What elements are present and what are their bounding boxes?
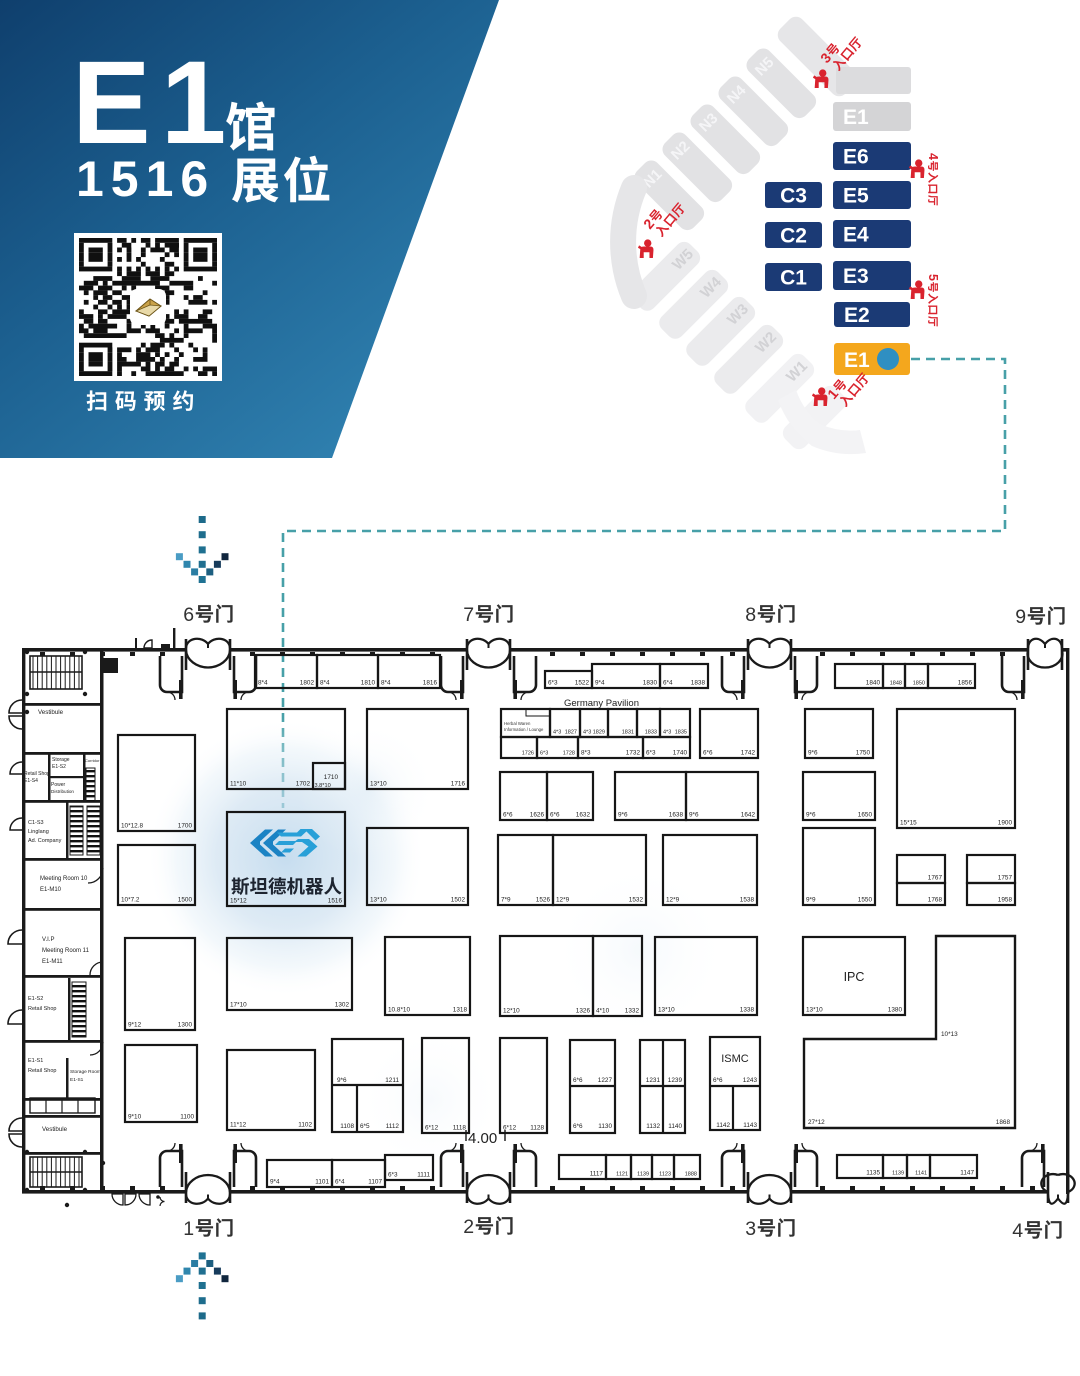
svg-text:E2: E2 bbox=[844, 304, 870, 327]
svg-text:11*10: 11*10 bbox=[230, 781, 247, 788]
svg-text:1830: 1830 bbox=[643, 680, 658, 687]
svg-text:1868: 1868 bbox=[996, 1119, 1011, 1126]
svg-text:10.8*10: 10.8*10 bbox=[388, 1007, 410, 1014]
svg-text:E1-S1: E1-S1 bbox=[70, 1077, 84, 1083]
svg-text:V.I.P: V.I.P bbox=[42, 937, 54, 943]
svg-text:1626: 1626 bbox=[530, 812, 545, 819]
svg-text:1516: 1516 bbox=[76, 151, 215, 207]
svg-text:1141: 1141 bbox=[915, 1171, 927, 1177]
svg-text:1380: 1380 bbox=[888, 1007, 903, 1014]
svg-text:13*10: 13*10 bbox=[370, 897, 387, 904]
svg-text:4*3: 4*3 bbox=[583, 730, 591, 736]
svg-text:Retail Shop: Retail Shop bbox=[24, 771, 50, 777]
svg-text:1302: 1302 bbox=[335, 1002, 350, 1009]
svg-text:1740: 1740 bbox=[673, 750, 688, 757]
svg-text:5: 5 bbox=[926, 274, 940, 281]
svg-text:1838: 1838 bbox=[691, 680, 706, 687]
svg-text:Power: Power bbox=[51, 782, 66, 788]
svg-text:Storage Room: Storage Room bbox=[70, 1069, 101, 1075]
svg-text:11*12: 11*12 bbox=[230, 1122, 247, 1129]
svg-text:13*10: 13*10 bbox=[806, 1007, 823, 1014]
svg-text:1135: 1135 bbox=[866, 1170, 880, 1177]
svg-text:6*6: 6*6 bbox=[573, 1123, 583, 1130]
svg-text:6: 6 bbox=[183, 604, 194, 626]
svg-text:6*3: 6*3 bbox=[548, 680, 558, 687]
svg-text:6*6: 6*6 bbox=[713, 1077, 723, 1084]
svg-text:1650: 1650 bbox=[858, 812, 873, 819]
svg-text:10*13: 10*13 bbox=[941, 1031, 958, 1038]
svg-text:9*6: 9*6 bbox=[689, 812, 699, 819]
svg-text:Meeting Room 10: Meeting Room 10 bbox=[40, 876, 88, 882]
svg-text:E6: E6 bbox=[843, 146, 869, 169]
svg-text:1757: 1757 bbox=[998, 875, 1013, 882]
svg-text:1332: 1332 bbox=[625, 1008, 640, 1015]
svg-text:15*15: 15*15 bbox=[900, 820, 917, 827]
svg-text:C3: C3 bbox=[780, 185, 807, 208]
svg-text:8*3: 8*3 bbox=[581, 750, 591, 757]
svg-text:1900: 1900 bbox=[998, 820, 1013, 827]
svg-text:Meeting Room 11: Meeting Room 11 bbox=[42, 948, 90, 954]
svg-text:7*9: 7*9 bbox=[501, 897, 511, 904]
svg-text:6*6: 6*6 bbox=[503, 812, 513, 819]
svg-text:1102: 1102 bbox=[298, 1122, 312, 1129]
svg-text:Information / Lounge: Information / Lounge bbox=[504, 727, 544, 732]
svg-text:ISMC: ISMC bbox=[721, 1053, 749, 1065]
svg-text:1123: 1123 bbox=[659, 1172, 671, 1178]
svg-text:1300: 1300 bbox=[178, 1022, 193, 1029]
svg-text:1211: 1211 bbox=[385, 1077, 399, 1084]
svg-text:9*6: 9*6 bbox=[618, 812, 628, 819]
svg-text:E1-S4: E1-S4 bbox=[24, 778, 38, 784]
svg-text:7: 7 bbox=[463, 604, 474, 626]
svg-text:6*6: 6*6 bbox=[573, 1077, 583, 1084]
svg-text:1231: 1231 bbox=[646, 1077, 661, 1084]
svg-text:E1-S2: E1-S2 bbox=[52, 764, 66, 770]
svg-text:1732: 1732 bbox=[626, 750, 641, 757]
svg-text:1140: 1140 bbox=[668, 1123, 682, 1130]
svg-text:1108: 1108 bbox=[340, 1123, 354, 1130]
svg-text:1128: 1128 bbox=[530, 1125, 544, 1132]
svg-text:12*9: 12*9 bbox=[666, 897, 680, 904]
svg-text:1139: 1139 bbox=[892, 1171, 904, 1177]
svg-text:E1-M11: E1-M11 bbox=[42, 959, 63, 965]
svg-text:1848: 1848 bbox=[890, 681, 902, 687]
svg-text:1827: 1827 bbox=[565, 730, 577, 736]
svg-text:E5: E5 bbox=[843, 185, 869, 208]
svg-text:1130: 1130 bbox=[598, 1123, 612, 1130]
svg-text:1132: 1132 bbox=[646, 1123, 660, 1130]
svg-text:12*10: 12*10 bbox=[503, 1008, 520, 1015]
svg-text:1810: 1810 bbox=[361, 680, 376, 687]
svg-text:Vestibule: Vestibule bbox=[42, 1126, 68, 1133]
svg-text:2: 2 bbox=[463, 1216, 474, 1238]
svg-text:4: 4 bbox=[926, 153, 940, 160]
svg-text:1147: 1147 bbox=[960, 1170, 974, 1177]
svg-text:4: 4 bbox=[1012, 1220, 1023, 1242]
svg-text:13*10: 13*10 bbox=[370, 781, 387, 788]
svg-text:1101: 1101 bbox=[315, 1179, 329, 1186]
svg-text:1139: 1139 bbox=[637, 1172, 649, 1178]
svg-text:1856: 1856 bbox=[958, 680, 973, 687]
svg-text:Ad. Company: Ad. Company bbox=[28, 838, 62, 844]
svg-text:Retail Shop: Retail Shop bbox=[28, 1068, 56, 1074]
svg-text:1700: 1700 bbox=[178, 823, 193, 830]
svg-text:E1-S1: E1-S1 bbox=[28, 1058, 43, 1064]
svg-text:1532: 1532 bbox=[629, 897, 644, 904]
svg-text:1728: 1728 bbox=[563, 751, 575, 757]
svg-text:1239: 1239 bbox=[668, 1077, 683, 1084]
svg-text:1816: 1816 bbox=[423, 680, 438, 687]
svg-text:9*10: 9*10 bbox=[128, 1114, 142, 1121]
svg-text:1: 1 bbox=[183, 1218, 194, 1240]
svg-text:3: 3 bbox=[745, 1218, 756, 1240]
svg-text:9: 9 bbox=[1015, 606, 1026, 628]
svg-text:1638: 1638 bbox=[669, 812, 684, 819]
svg-text:E3: E3 bbox=[843, 265, 869, 288]
svg-text:1642: 1642 bbox=[741, 812, 756, 819]
svg-text:E1: E1 bbox=[843, 106, 869, 129]
svg-text:1888: 1888 bbox=[685, 1172, 697, 1178]
svg-text:4*3: 4*3 bbox=[663, 730, 671, 736]
svg-text:E1: E1 bbox=[844, 349, 870, 372]
svg-text:3.8*10: 3.8*10 bbox=[315, 783, 331, 789]
svg-text:8*4: 8*4 bbox=[381, 680, 391, 687]
svg-text:1958: 1958 bbox=[998, 897, 1013, 904]
svg-text:Germany Pavilion: Germany Pavilion bbox=[564, 698, 639, 709]
svg-text:6*4: 6*4 bbox=[663, 680, 673, 687]
svg-text:1750: 1750 bbox=[856, 750, 871, 757]
svg-text:4*3: 4*3 bbox=[553, 730, 561, 736]
svg-text:1538: 1538 bbox=[740, 897, 755, 904]
svg-text:Retail Shop: Retail Shop bbox=[28, 1006, 56, 1012]
svg-text:9*12: 9*12 bbox=[128, 1022, 142, 1029]
svg-text:1833: 1833 bbox=[645, 730, 657, 736]
svg-text:C1-S3: C1-S3 bbox=[28, 820, 44, 826]
svg-text:1726: 1726 bbox=[522, 751, 534, 757]
svg-text:6*12: 6*12 bbox=[425, 1125, 439, 1132]
svg-text:13*10: 13*10 bbox=[658, 1007, 675, 1014]
svg-text:1143: 1143 bbox=[743, 1122, 757, 1129]
svg-text:4.00: 4.00 bbox=[468, 1130, 497, 1147]
svg-text:9*6: 9*6 bbox=[337, 1077, 347, 1084]
svg-text:1831: 1831 bbox=[622, 730, 634, 736]
svg-text:E1: E1 bbox=[72, 37, 236, 169]
svg-text:1829: 1829 bbox=[593, 730, 605, 736]
svg-text:9*6: 9*6 bbox=[806, 812, 816, 819]
svg-text:1117: 1117 bbox=[590, 1171, 604, 1178]
svg-text:C2: C2 bbox=[780, 225, 807, 248]
svg-text:8: 8 bbox=[745, 604, 756, 626]
svg-text:Corridor: Corridor bbox=[85, 758, 100, 763]
svg-text:1526: 1526 bbox=[536, 897, 551, 904]
svg-text:E4: E4 bbox=[843, 224, 869, 247]
svg-text:6*6: 6*6 bbox=[550, 812, 560, 819]
svg-text:15*12: 15*12 bbox=[230, 898, 247, 905]
svg-text:1710: 1710 bbox=[324, 774, 339, 781]
svg-text:Distribution: Distribution bbox=[51, 789, 74, 794]
svg-text:1338: 1338 bbox=[740, 1007, 755, 1014]
svg-text:1716: 1716 bbox=[451, 781, 466, 788]
svg-text:IPC: IPC bbox=[844, 970, 865, 984]
svg-text:Herbal Waren: Herbal Waren bbox=[504, 721, 531, 726]
svg-text:12*9: 12*9 bbox=[556, 897, 570, 904]
svg-text:9*4: 9*4 bbox=[270, 1179, 280, 1186]
svg-text:6*4: 6*4 bbox=[335, 1179, 345, 1186]
svg-text:1502: 1502 bbox=[451, 897, 466, 904]
svg-text:4*10: 4*10 bbox=[596, 1008, 610, 1015]
svg-text:1112: 1112 bbox=[386, 1123, 400, 1130]
svg-text:Vestibule: Vestibule bbox=[38, 709, 64, 716]
svg-text:1100: 1100 bbox=[180, 1114, 194, 1121]
svg-text:27*12: 27*12 bbox=[808, 1119, 825, 1126]
svg-text:1550: 1550 bbox=[858, 897, 873, 904]
svg-text:1326: 1326 bbox=[576, 1008, 591, 1015]
svg-text:17*10: 17*10 bbox=[230, 1002, 247, 1009]
svg-text:1767: 1767 bbox=[928, 875, 943, 882]
svg-text:1516: 1516 bbox=[328, 898, 343, 905]
svg-text:1142: 1142 bbox=[716, 1122, 730, 1129]
svg-text:1318: 1318 bbox=[453, 1007, 468, 1014]
svg-text:E1-S2: E1-S2 bbox=[28, 996, 43, 1002]
svg-text:1522: 1522 bbox=[575, 680, 590, 687]
svg-text:1500: 1500 bbox=[178, 897, 193, 904]
svg-text:8*4: 8*4 bbox=[320, 680, 330, 687]
svg-text:1111: 1111 bbox=[417, 1172, 430, 1179]
svg-text:C1: C1 bbox=[780, 267, 807, 290]
svg-text:6*3: 6*3 bbox=[388, 1172, 398, 1179]
svg-text:9*4: 9*4 bbox=[595, 680, 605, 687]
svg-text:1742: 1742 bbox=[741, 750, 756, 757]
svg-text:1107: 1107 bbox=[368, 1179, 382, 1186]
svg-text:8*4: 8*4 bbox=[258, 680, 268, 687]
svg-text:9*9: 9*9 bbox=[806, 897, 816, 904]
svg-text:6*3: 6*3 bbox=[540, 751, 548, 757]
svg-text:1850: 1850 bbox=[913, 681, 925, 687]
svg-text:Linglang: Linglang bbox=[28, 829, 49, 835]
svg-text:1840: 1840 bbox=[866, 680, 881, 687]
svg-text:6*3: 6*3 bbox=[646, 750, 656, 757]
svg-text:1802: 1802 bbox=[300, 680, 315, 687]
svg-text:6*6: 6*6 bbox=[703, 750, 713, 757]
svg-text:Storage: Storage bbox=[52, 757, 70, 763]
svg-text:1632: 1632 bbox=[576, 812, 591, 819]
svg-text:E1-M10: E1-M10 bbox=[40, 887, 62, 893]
svg-text:1768: 1768 bbox=[928, 897, 943, 904]
svg-text:1835: 1835 bbox=[675, 730, 687, 736]
svg-text:10*7.2: 10*7.2 bbox=[121, 897, 140, 904]
svg-text:1702: 1702 bbox=[296, 781, 311, 788]
svg-text:9*6: 9*6 bbox=[808, 750, 818, 757]
svg-text:1227: 1227 bbox=[598, 1077, 613, 1084]
svg-text:1243: 1243 bbox=[743, 1077, 758, 1084]
svg-text:6*5: 6*5 bbox=[360, 1123, 370, 1130]
svg-text:10*12.8: 10*12.8 bbox=[121, 823, 143, 830]
svg-text:1118: 1118 bbox=[453, 1125, 467, 1132]
svg-text:1121: 1121 bbox=[616, 1172, 628, 1178]
